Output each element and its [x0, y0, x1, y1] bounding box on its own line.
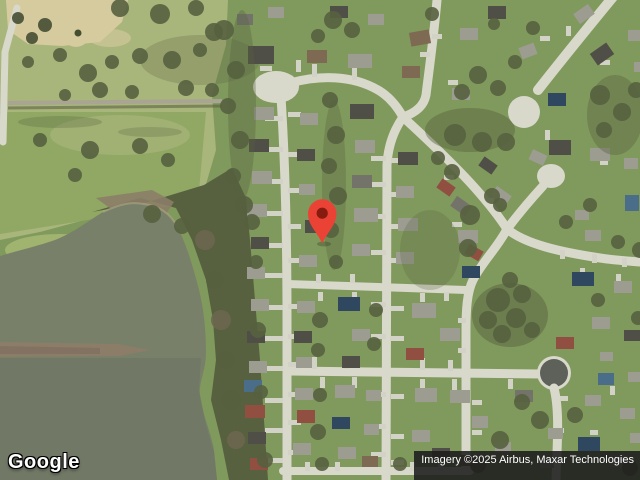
driveway	[391, 434, 404, 439]
tree	[559, 215, 573, 229]
tree	[92, 82, 108, 98]
driveway	[320, 377, 325, 388]
house	[585, 395, 601, 406]
driveway	[458, 348, 466, 353]
driveway	[391, 306, 404, 311]
house	[402, 66, 420, 78]
driveway	[472, 400, 482, 405]
driveway	[265, 211, 283, 216]
house	[352, 329, 370, 341]
house	[412, 430, 430, 442]
house	[440, 328, 460, 341]
house	[297, 301, 315, 313]
tree	[327, 126, 345, 144]
tree	[393, 457, 407, 471]
driveway	[288, 224, 301, 229]
tree	[26, 32, 38, 44]
tree	[53, 48, 67, 62]
house	[462, 266, 480, 278]
house	[245, 405, 265, 418]
driveway	[305, 462, 310, 471]
tree	[369, 303, 383, 317]
tree	[311, 29, 325, 43]
driveway	[444, 292, 449, 301]
driveway	[432, 34, 442, 39]
tree	[444, 124, 466, 146]
driveway	[391, 394, 404, 399]
house	[355, 140, 375, 153]
house	[350, 104, 374, 119]
map-viewport[interactable]: Google Imagery ©2025 Airbus, Maxar Techn…	[0, 0, 640, 480]
house	[624, 158, 638, 169]
driveway	[265, 336, 283, 341]
tree	[497, 133, 515, 151]
house	[415, 388, 437, 402]
tree	[591, 293, 605, 307]
house	[366, 390, 381, 401]
house	[624, 330, 640, 341]
house	[254, 107, 274, 120]
house	[628, 30, 640, 41]
house	[332, 417, 350, 429]
tree	[220, 98, 236, 114]
tree	[22, 56, 34, 68]
tree	[178, 80, 194, 96]
house	[488, 6, 506, 19]
driveway	[265, 273, 283, 278]
tree	[125, 85, 139, 99]
tree	[329, 187, 347, 205]
house	[248, 432, 266, 444]
driveway	[371, 156, 386, 161]
house	[342, 356, 360, 368]
house	[364, 424, 379, 435]
driveway	[335, 462, 340, 471]
tree	[367, 337, 381, 351]
driveway	[265, 366, 283, 371]
court-east	[537, 164, 565, 188]
tree	[311, 343, 325, 357]
tree	[132, 138, 148, 154]
house	[578, 437, 600, 451]
driveway	[592, 254, 597, 263]
tree	[244, 214, 260, 230]
tree	[161, 153, 175, 167]
cross-street-lower	[289, 371, 540, 374]
tree	[611, 235, 625, 249]
house	[352, 244, 370, 256]
tree	[344, 22, 360, 38]
house	[548, 428, 563, 439]
house	[549, 140, 571, 155]
house	[293, 443, 311, 455]
driveway	[560, 396, 568, 401]
tree	[143, 205, 161, 223]
tree	[596, 122, 612, 138]
tree	[79, 64, 97, 82]
tree	[506, 308, 526, 328]
imagery-attribution: Imagery ©2025 Airbus, Maxar Technologies	[414, 451, 640, 480]
tree	[81, 141, 99, 159]
tree	[425, 7, 439, 21]
tree	[469, 66, 487, 84]
house	[251, 299, 269, 311]
tree	[195, 230, 215, 250]
driveway	[448, 360, 453, 371]
tree	[493, 198, 507, 212]
driveway	[265, 398, 283, 403]
house	[294, 331, 312, 343]
driveway	[560, 250, 565, 259]
house	[335, 385, 355, 398]
tree	[524, 322, 540, 338]
tree	[460, 205, 480, 225]
tree	[68, 168, 82, 182]
tree	[490, 80, 506, 96]
tree	[444, 164, 460, 180]
driveway	[545, 130, 550, 140]
driveway	[590, 430, 598, 435]
house	[338, 447, 356, 459]
tree	[249, 255, 263, 269]
driveway	[420, 293, 425, 302]
tree	[250, 322, 266, 338]
house	[268, 7, 284, 18]
driveway	[458, 318, 466, 323]
driveway	[316, 274, 321, 283]
tree	[235, 196, 253, 214]
tree	[214, 20, 234, 40]
house	[249, 361, 267, 373]
house	[251, 237, 269, 249]
tree	[257, 452, 273, 468]
driveway	[540, 36, 550, 41]
house	[625, 195, 639, 211]
tree	[514, 394, 530, 410]
tree	[459, 239, 477, 257]
house	[362, 456, 378, 467]
tree	[12, 12, 24, 24]
house	[600, 352, 613, 361]
house	[398, 152, 418, 165]
house	[396, 186, 414, 198]
driveway	[391, 336, 404, 341]
tree	[486, 288, 510, 312]
house	[450, 390, 470, 403]
driveway	[452, 379, 457, 390]
driveway	[420, 52, 430, 57]
tree	[313, 388, 327, 402]
pin-inner-dot	[317, 208, 328, 219]
house	[548, 93, 566, 106]
house	[472, 416, 488, 428]
tree	[454, 84, 470, 100]
driveway	[622, 258, 627, 267]
house	[406, 348, 424, 360]
house	[299, 184, 315, 195]
tree	[315, 457, 329, 471]
tree	[479, 311, 497, 329]
tree	[254, 385, 268, 399]
driveway	[448, 80, 458, 85]
tree	[491, 431, 509, 449]
house	[354, 208, 378, 222]
park-trail	[8, 101, 222, 103]
driveway	[472, 430, 482, 435]
tree	[225, 168, 241, 184]
house	[352, 175, 372, 188]
tree	[583, 198, 597, 212]
tree	[322, 92, 338, 108]
house	[338, 297, 360, 311]
tree	[221, 390, 241, 410]
tree	[590, 85, 610, 105]
house	[296, 357, 312, 368]
house	[299, 255, 317, 267]
cul-de-sac-north	[508, 96, 540, 128]
tree	[33, 133, 47, 147]
tree	[206, 271, 224, 289]
tree	[193, 43, 207, 57]
house	[300, 113, 318, 125]
driveway	[566, 26, 571, 36]
tree	[513, 285, 531, 303]
driveway	[288, 112, 301, 117]
driveway	[508, 379, 513, 389]
tree	[493, 325, 511, 343]
house	[252, 171, 272, 184]
tree	[613, 103, 631, 121]
tree	[132, 48, 148, 64]
house	[585, 230, 601, 241]
driveway	[296, 60, 301, 72]
house	[297, 410, 315, 423]
tree	[324, 11, 342, 29]
driveway	[610, 386, 615, 395]
tree	[205, 83, 219, 97]
house	[348, 54, 372, 68]
house	[556, 337, 574, 349]
tree	[231, 131, 249, 149]
house	[614, 281, 632, 293]
tree	[174, 218, 190, 234]
tree	[329, 255, 343, 269]
house	[307, 50, 327, 63]
house	[460, 28, 478, 40]
house	[628, 372, 640, 382]
driveway	[265, 428, 283, 433]
tree	[312, 312, 328, 328]
tree	[211, 310, 231, 330]
house	[295, 388, 313, 400]
driveway	[371, 182, 386, 187]
satellite-imagery	[0, 0, 640, 480]
tree	[150, 4, 170, 24]
driveway	[352, 68, 357, 80]
house	[620, 408, 635, 419]
cul-de-sac-dark	[540, 359, 568, 387]
tree	[105, 55, 119, 69]
tree	[227, 431, 245, 449]
tree	[321, 158, 337, 174]
tree	[310, 424, 326, 440]
house	[297, 149, 315, 161]
house	[412, 303, 436, 318]
driveway	[318, 292, 323, 301]
tree	[38, 18, 52, 32]
tree	[227, 61, 245, 79]
tree	[163, 51, 181, 69]
house	[630, 433, 640, 443]
house	[592, 317, 610, 329]
house	[634, 62, 640, 72]
tree	[472, 132, 492, 152]
driveway	[312, 64, 317, 77]
tree	[188, 0, 204, 16]
driveway	[371, 250, 386, 255]
house	[575, 210, 589, 220]
tree	[526, 21, 540, 35]
tree	[488, 18, 500, 30]
driveway	[616, 274, 621, 282]
tree	[217, 351, 235, 369]
driveway	[350, 274, 355, 283]
google-logo[interactable]: Google	[8, 451, 80, 474]
tree	[508, 55, 522, 69]
tree	[502, 272, 518, 288]
house	[598, 373, 614, 385]
house	[572, 272, 594, 286]
driveway	[312, 357, 317, 369]
tree	[431, 151, 445, 165]
driveway	[260, 66, 272, 71]
tree	[59, 89, 71, 101]
house	[368, 14, 384, 25]
tree	[567, 407, 583, 423]
tree	[531, 411, 549, 429]
